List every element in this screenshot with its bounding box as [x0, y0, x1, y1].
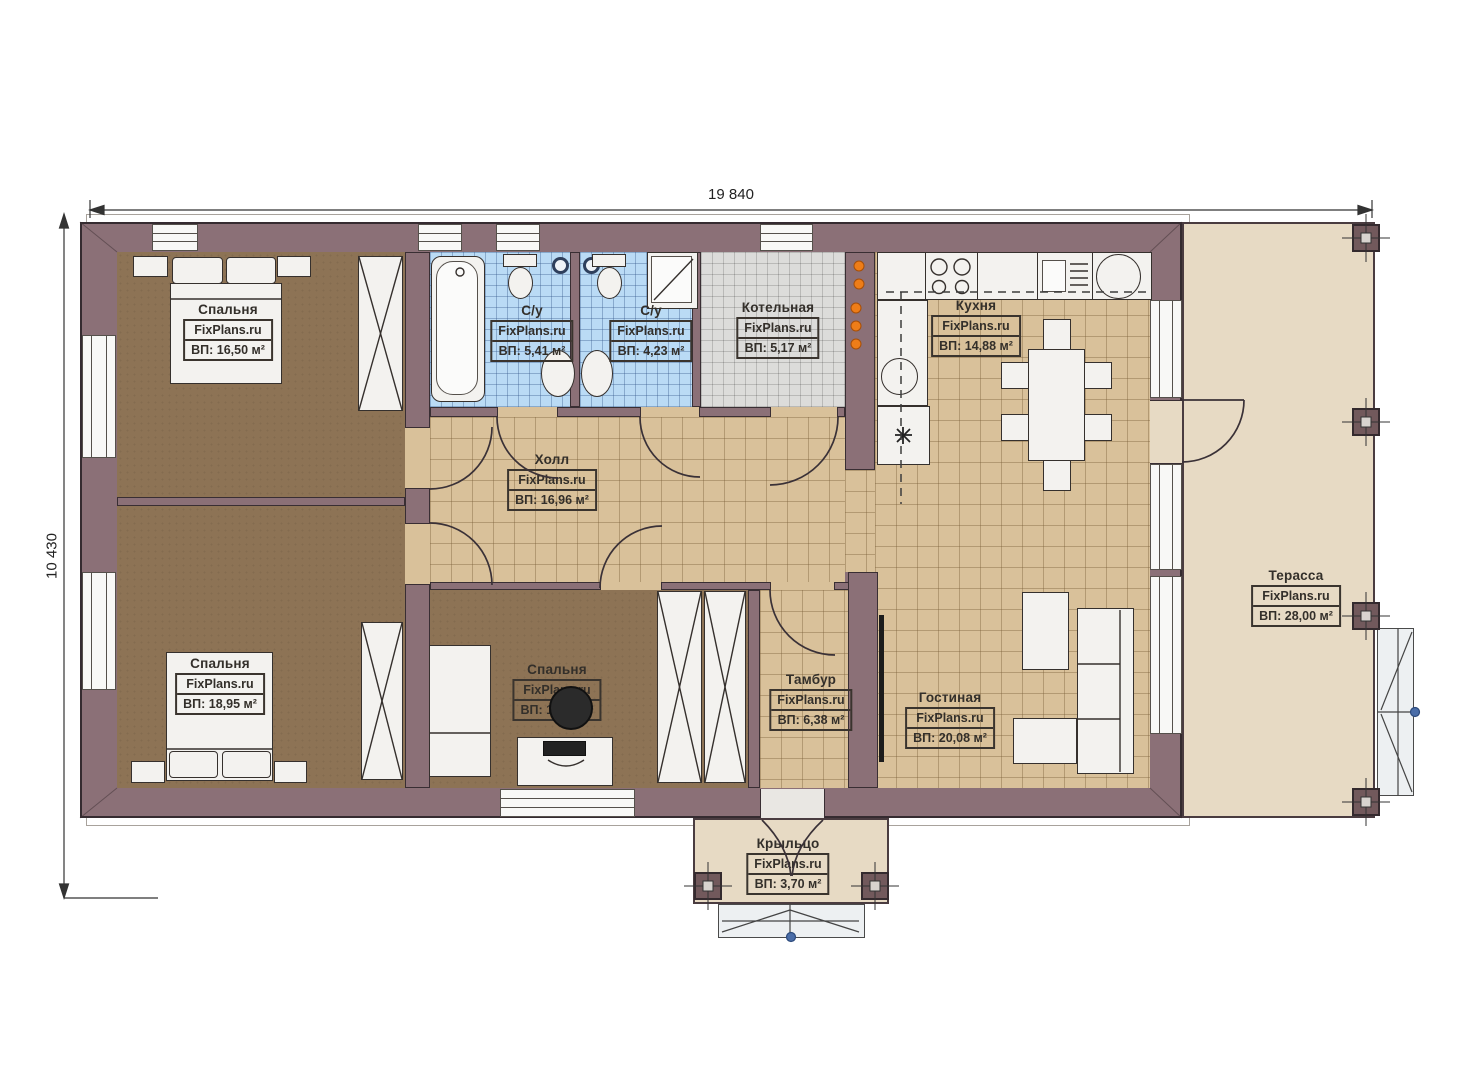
watermark: FixPlans.ru: [611, 322, 690, 342]
door-opening-bathroom-1: [497, 407, 558, 417]
room-label-vestibule: Тамбур FixPlans.ru ВП: 6,38 м²: [769, 672, 852, 731]
door-opening-vestibule: [770, 582, 835, 590]
fridge: [877, 406, 930, 465]
cabinet: [1022, 592, 1069, 670]
chair: [1001, 414, 1029, 441]
watermark: FixPlans.ru: [748, 855, 827, 875]
room-label-kitchen: Кухня FixPlans.ru ВП: 14,88 м²: [931, 298, 1021, 357]
watermark: FixPlans.ru: [771, 691, 850, 711]
room-name: Холл: [507, 452, 597, 467]
towel-ring: [552, 257, 569, 274]
pillow: [222, 751, 271, 778]
watermark: FixPlans.ru: [492, 322, 571, 342]
room-label-bedroom-2: Спальня FixPlans.ru ВП: 18,95 м²: [175, 656, 265, 715]
window-bottom-1: [500, 789, 635, 817]
nightstand: [274, 761, 307, 783]
room-name: Котельная: [736, 300, 819, 315]
room-info-box: FixPlans.ru ВП: 5,41 м²: [490, 320, 573, 362]
dimension-width: 19 840: [708, 186, 754, 203]
oven-door: [1042, 260, 1066, 292]
watermark: FixPlans.ru: [177, 675, 263, 695]
wall-bedroom3-vestibule: [748, 590, 760, 788]
monitor: [543, 741, 586, 756]
room-info-box: FixPlans.ru ВП: 16,50 м²: [183, 319, 273, 361]
wardrobe: [361, 622, 403, 780]
toilet-tank: [503, 254, 537, 267]
floor-passage: [845, 470, 875, 572]
room-info-box: FixPlans.ru ВП: 3,70 м²: [746, 853, 829, 895]
room-label-porch: Крыльцо FixPlans.ru ВП: 3,70 м²: [746, 836, 829, 895]
room-area: ВП: 16,50 м²: [185, 341, 271, 359]
chair: [1043, 460, 1071, 491]
bathtub-basin: [436, 261, 478, 395]
terrace-deck: [1182, 222, 1375, 818]
room-info-box: FixPlans.ru ВП: 5,17 м²: [736, 317, 819, 359]
window-top-1: [152, 224, 198, 251]
terrace-steps: [1377, 628, 1414, 796]
window-top-4: [760, 224, 813, 251]
stove: [925, 252, 978, 300]
floor-plan: Спальня FixPlans.ru ВП: 16,50 м² С/у Fix…: [0, 0, 1473, 1080]
room-info-box: FixPlans.ru ВП: 4,23 м²: [609, 320, 692, 362]
coffee-table: [1013, 718, 1077, 764]
terrace-column-2: [1352, 408, 1380, 436]
room-name: Спальня: [183, 302, 273, 317]
oven-appliance: [1037, 252, 1093, 300]
room-info-box: FixPlans.ru ВП: 6,38 м²: [769, 689, 852, 731]
shower-inner: [651, 256, 692, 303]
window-right-3: [1150, 576, 1182, 734]
room-name: Тамбур: [769, 672, 852, 687]
room-info-box: FixPlans.ru ВП: 20,08 м²: [905, 707, 995, 749]
room-name: Гостиная: [905, 690, 995, 705]
room-info-box: FixPlans.ru ВП: 16,96 м²: [507, 469, 597, 511]
toilet-tank: [592, 254, 626, 267]
bathtub: [431, 256, 485, 402]
room-name: Спальня: [512, 662, 601, 677]
chair: [1001, 362, 1029, 389]
window-left-2: [82, 572, 116, 690]
wall-between-bedrooms: [117, 497, 405, 506]
door-opening-bedroom-2: [405, 523, 430, 585]
room-name: Терасса: [1251, 568, 1341, 583]
room-area: ВП: 3,70 м²: [748, 875, 827, 893]
door-opening-bedroom-3: [600, 582, 662, 590]
room-label-bathroom-1: С/у FixPlans.ru ВП: 5,41 м²: [490, 303, 573, 362]
room-area: ВП: 4,23 м²: [611, 342, 690, 360]
sofa: [1077, 608, 1134, 774]
door-opening-entrance: [760, 789, 825, 818]
shower-tray: [647, 252, 698, 309]
porch-column-right: [861, 872, 889, 900]
tv: [879, 615, 884, 762]
room-name: С/у: [490, 303, 573, 318]
nightstand: [277, 256, 311, 277]
room-area: ВП: 5,41 м²: [492, 342, 571, 360]
window-top-2: [418, 224, 462, 251]
room-name: Крыльцо: [746, 836, 829, 851]
room-area: ВП: 20,08 м²: [907, 729, 993, 747]
dining-table: [1028, 349, 1085, 461]
window-top-3: [496, 224, 540, 251]
kitchen-sink: [1096, 254, 1141, 299]
room-label-bathroom-2: С/у FixPlans.ru ВП: 4,23 м²: [609, 303, 692, 362]
porch-steps: [718, 904, 865, 938]
porch-column-left: [694, 872, 722, 900]
room-area: ВП: 6,38 м²: [771, 711, 850, 729]
pedestal-sink: [581, 350, 613, 397]
terrace-column-1: [1352, 224, 1380, 252]
wardrobe: [704, 591, 746, 783]
wardrobe: [657, 591, 702, 783]
chair: [1084, 362, 1112, 389]
watermark: FixPlans.ru: [738, 319, 817, 339]
room-info-box: FixPlans.ru ВП: 18,95 м²: [175, 673, 265, 715]
chair: [1043, 319, 1071, 350]
room-area: ВП: 5,17 м²: [738, 339, 817, 357]
pillow: [172, 257, 223, 284]
window-right-2: [1150, 464, 1182, 570]
room-area: ВП: 28,00 м²: [1253, 607, 1339, 625]
room-label-hall: Холл FixPlans.ru ВП: 16,96 м²: [507, 452, 597, 511]
watermark: FixPlans.ru: [1253, 587, 1339, 607]
toilet-bowl: [597, 267, 622, 299]
room-area: ВП: 16,96 м²: [509, 491, 595, 509]
room-label-bedroom-1: Спальня FixPlans.ru ВП: 16,50 м²: [183, 302, 273, 361]
door-opening-bedroom-1: [405, 427, 430, 489]
wall-boiler-kitchen: [845, 252, 875, 470]
room-name: Спальня: [175, 656, 265, 671]
door-opening-bathroom-2: [640, 407, 700, 417]
door-opening-terrace: [1150, 400, 1182, 464]
room-name: С/у: [609, 303, 692, 318]
wall-bedrooms-hall: [405, 252, 430, 788]
watermark: FixPlans.ru: [509, 471, 595, 491]
room-info-box: FixPlans.ru ВП: 14,88 м²: [931, 315, 1021, 357]
pillow: [226, 257, 276, 284]
nightstand: [133, 256, 168, 277]
chair: [1084, 414, 1112, 441]
window-right-1: [1150, 300, 1182, 398]
watermark: FixPlans.ru: [907, 709, 993, 729]
single-bed: [429, 645, 491, 777]
room-label-boiler-room: Котельная FixPlans.ru ВП: 5,17 м²: [736, 300, 819, 359]
office-chair: [549, 686, 593, 730]
watermark: FixPlans.ru: [185, 321, 271, 341]
room-label-terrace: Терасса FixPlans.ru ВП: 28,00 м²: [1251, 568, 1341, 627]
room-area: ВП: 14,88 м²: [933, 337, 1019, 355]
room-area: ВП: 18,95 м²: [177, 695, 263, 713]
room-info-box: FixPlans.ru ВП: 28,00 м²: [1251, 585, 1341, 627]
washing-machine: [881, 358, 918, 395]
window-left-1: [82, 335, 116, 458]
floor-hall: [430, 417, 845, 582]
room-name: Кухня: [931, 298, 1021, 313]
nightstand: [131, 761, 165, 783]
wardrobe: [358, 256, 403, 411]
pillow: [169, 751, 218, 778]
dimension-height: 10 430: [44, 533, 61, 579]
watermark: FixPlans.ru: [933, 317, 1019, 337]
room-label-living-room: Гостиная FixPlans.ru ВП: 20,08 м²: [905, 690, 995, 749]
toilet-bowl: [508, 267, 533, 299]
door-opening-boiler: [770, 407, 838, 417]
terrace-column-3: [1352, 602, 1380, 630]
terrace-column-4: [1352, 788, 1380, 816]
